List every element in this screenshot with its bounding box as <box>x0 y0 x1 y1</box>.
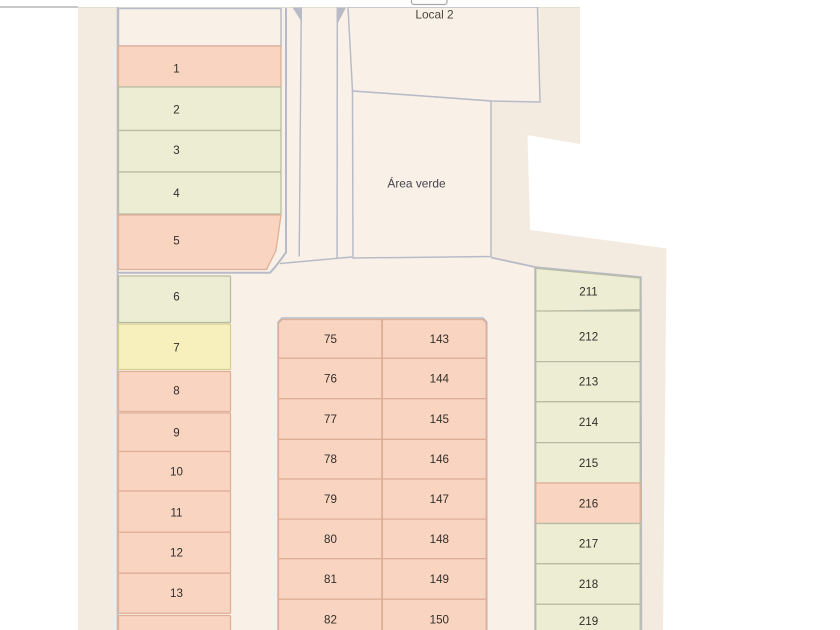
svg-text:4: 4 <box>173 187 180 200</box>
svg-text:146: 146 <box>430 453 449 466</box>
svg-text:78: 78 <box>324 453 337 466</box>
svg-text:75: 75 <box>324 333 337 346</box>
svg-text:82: 82 <box>324 614 337 627</box>
svg-text:76: 76 <box>324 373 337 386</box>
svg-text:1: 1 <box>173 63 179 76</box>
svg-text:Área verde: Área verde <box>387 176 446 191</box>
svg-text:218: 218 <box>579 578 598 591</box>
svg-text:Local 2: Local 2 <box>415 8 454 22</box>
svg-text:80: 80 <box>324 533 337 546</box>
svg-text:6: 6 <box>173 291 179 304</box>
svg-text:5: 5 <box>173 235 179 248</box>
svg-text:143: 143 <box>430 333 449 346</box>
svg-text:219: 219 <box>579 615 598 628</box>
svg-text:215: 215 <box>579 457 598 470</box>
svg-text:11: 11 <box>170 507 182 520</box>
svg-text:148: 148 <box>430 533 449 546</box>
svg-text:9: 9 <box>173 427 179 440</box>
svg-text:13: 13 <box>170 587 183 600</box>
svg-text:12: 12 <box>170 547 183 560</box>
svg-text:211: 211 <box>579 286 597 299</box>
svg-text:149: 149 <box>430 573 449 586</box>
svg-text:213: 213 <box>579 376 598 389</box>
svg-text:214: 214 <box>579 416 599 429</box>
svg-text:217: 217 <box>579 538 598 551</box>
svg-text:212: 212 <box>579 330 598 343</box>
svg-text:2: 2 <box>173 104 179 117</box>
svg-text:216: 216 <box>579 497 598 510</box>
svg-text:144: 144 <box>430 373 450 386</box>
svg-text:147: 147 <box>430 493 449 506</box>
svg-text:10: 10 <box>170 466 183 479</box>
svg-text:3: 3 <box>173 144 179 157</box>
svg-text:145: 145 <box>430 413 449 426</box>
svg-text:150: 150 <box>430 614 449 627</box>
svg-text:81: 81 <box>324 573 337 586</box>
svg-text:8: 8 <box>173 385 179 398</box>
svg-text:79: 79 <box>324 493 337 506</box>
svg-text:7: 7 <box>173 342 179 355</box>
svg-text:77: 77 <box>324 413 337 426</box>
